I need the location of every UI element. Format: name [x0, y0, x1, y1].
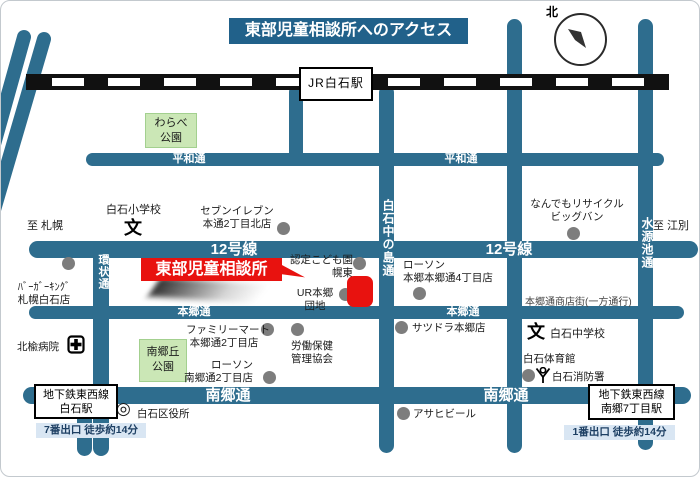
- rodohoken-line1: 労働保健: [291, 340, 333, 353]
- banner-shadow: [148, 277, 281, 305]
- poi-dot-lawson-4chome: [413, 287, 426, 300]
- burgerking-line1: ﾊﾞｰｶﾞｰｷﾝｸﾞ: [5, 281, 83, 294]
- warabe-park: わらべ 公園: [145, 113, 197, 148]
- poi-dot-burgerking: [62, 257, 75, 270]
- familymart-label: ファミリーマート 本郷通2丁目店: [186, 324, 262, 349]
- ward-office-symbol: ◎: [116, 403, 131, 416]
- nintei-line2: 幌東: [287, 267, 353, 280]
- hongo-dori-label-east: 本郷通: [447, 306, 480, 319]
- hokuyu-hospital-label: 北楡病院: [17, 341, 59, 354]
- shotengai-label: 本郷通商店街(一方通行): [525, 297, 632, 310]
- seven-eleven-line1: セブンイレブン: [199, 205, 275, 218]
- subway-left-station-label: 白石駅: [36, 402, 116, 416]
- bigbang-line1: なんでもリサイクル: [529, 198, 625, 211]
- subway-right-station-label: 南郷7丁目駅: [590, 402, 673, 416]
- ur-hongo-label: UR本郷 団地: [289, 287, 341, 312]
- bigbang-line2: ビッグバン: [529, 211, 625, 224]
- fire-station-icon: [535, 367, 551, 384]
- subway-nango7chome-station-box: 地下鉄東西線 南郷7丁目駅: [588, 384, 675, 420]
- poi-dot-asahi-beer: [397, 407, 410, 420]
- heiwa-dori-label-east: 平和通: [445, 153, 478, 166]
- shiroishi-junior-high-label: 白石中学校: [550, 328, 605, 341]
- compass-north-label: 北: [546, 3, 558, 20]
- nintei-line1: 認定こども園: [287, 254, 353, 267]
- jr-shiroishi-station-box: JR白石駅: [299, 67, 373, 101]
- lawson4-line1: ローソン: [403, 259, 493, 272]
- seven-eleven-label: セブンイレブン 本通2丁目北店: [199, 205, 275, 230]
- poi-dot-fire-station: [522, 369, 535, 382]
- familymart-line1: ファミリーマート: [186, 324, 262, 337]
- nangogaoka-park-label-1: 南郷丘: [140, 345, 186, 360]
- burgerking-label: ﾊﾞｰｶﾞｰｷﾝｸﾞ 札幌白石店: [5, 281, 83, 306]
- poi-dot-satudora: [395, 321, 408, 334]
- school-symbol-junior-high: 文: [527, 323, 545, 341]
- warabe-park-label-2: 公園: [146, 131, 196, 146]
- ward-office-label: 白石区役所: [137, 408, 190, 421]
- bigbang-label: なんでもリサイクル ビッグバン: [529, 198, 625, 223]
- subway-shiroishi-station-box: 地下鉄東西線 白石駅: [34, 384, 118, 419]
- lawson-4chome-label: ローソン 本郷本郷通4丁目店: [403, 259, 493, 284]
- poi-dot-rodohoken: [291, 323, 304, 336]
- lawson2-line1: ローソン: [171, 359, 253, 372]
- poi-dot-nintei-kodomoen: [353, 257, 366, 270]
- route12-label-east: 12号線: [486, 241, 533, 258]
- page-title: 東部児童相談所へのアクセス: [229, 18, 468, 44]
- kanjo-dori-label: 環状通: [95, 254, 111, 290]
- hongo-dori-label-west: 本郷通: [178, 306, 211, 319]
- rodohoken-label: 労働保健 管理協会: [291, 340, 333, 365]
- hospital-icon: [67, 335, 85, 354]
- fire-station-label: 白石消防署: [552, 371, 605, 384]
- rodohoken-line2: 管理協会: [291, 353, 333, 366]
- shiroishi-gym-label: 白石体育館: [523, 353, 576, 366]
- asahi-beer-label: アサヒビール: [413, 408, 476, 421]
- lawson4-line2: 本郷本郷通4丁目店: [403, 272, 493, 285]
- exit7-walk-label: 7番出口 徒歩約14分: [36, 423, 146, 438]
- warabe-park-label-1: わらべ: [146, 116, 196, 131]
- to-ebetsu-label: 至 江別: [653, 220, 689, 233]
- nango-dori-label-west: 南郷通: [205, 387, 250, 404]
- compass-circle: [554, 13, 607, 66]
- access-map: JR白石駅 北 東部児童相談所へのアクセス わらべ 公園 南郷丘 公園 平和通 …: [0, 0, 700, 477]
- compass-needle-icon: [556, 15, 605, 64]
- route12-label-west: 12号線: [211, 241, 258, 258]
- road-route12: [29, 241, 698, 258]
- subway-left-line-label: 地下鉄東西線: [36, 388, 116, 402]
- to-sapporo-label: 至 札幌: [27, 220, 63, 233]
- shiroishi-elementary-label: 白石小学校: [106, 204, 161, 217]
- poi-dot-seven-eleven: [277, 222, 290, 235]
- heiwa-dori-label-west: 平和通: [173, 153, 206, 166]
- burgerking-line2: 札幌白石店: [5, 294, 83, 307]
- subway-right-line-label: 地下鉄東西線: [590, 388, 673, 402]
- poi-dot-lawson-2chome: [263, 371, 276, 384]
- ur-line1: UR本郷: [289, 287, 341, 300]
- school-symbol-elementary: 文: [124, 219, 142, 237]
- poi-dot-bigbang: [567, 227, 580, 240]
- satudora-label: サツドラ本郷店: [412, 322, 486, 335]
- lawson-2chome-label: ローソン 南郷通2丁目店: [171, 359, 253, 384]
- ur-line2: 団地: [289, 300, 341, 313]
- destination-banner: 東部児童相談所: [141, 258, 282, 281]
- familymart-line2: 本郷通2丁目店: [186, 337, 262, 350]
- lawson2-line2: 南郷通2丁目店: [171, 372, 253, 385]
- exit1-walk-label: 1番出口 徒歩約14分: [564, 425, 675, 440]
- destination-marker: [347, 276, 373, 307]
- nango-dori-label-east: 南郷通: [483, 387, 528, 404]
- seven-eleven-line2: 本通2丁目北店: [199, 218, 275, 231]
- nakanoshima-dori-label: 白石中の島通: [380, 199, 397, 277]
